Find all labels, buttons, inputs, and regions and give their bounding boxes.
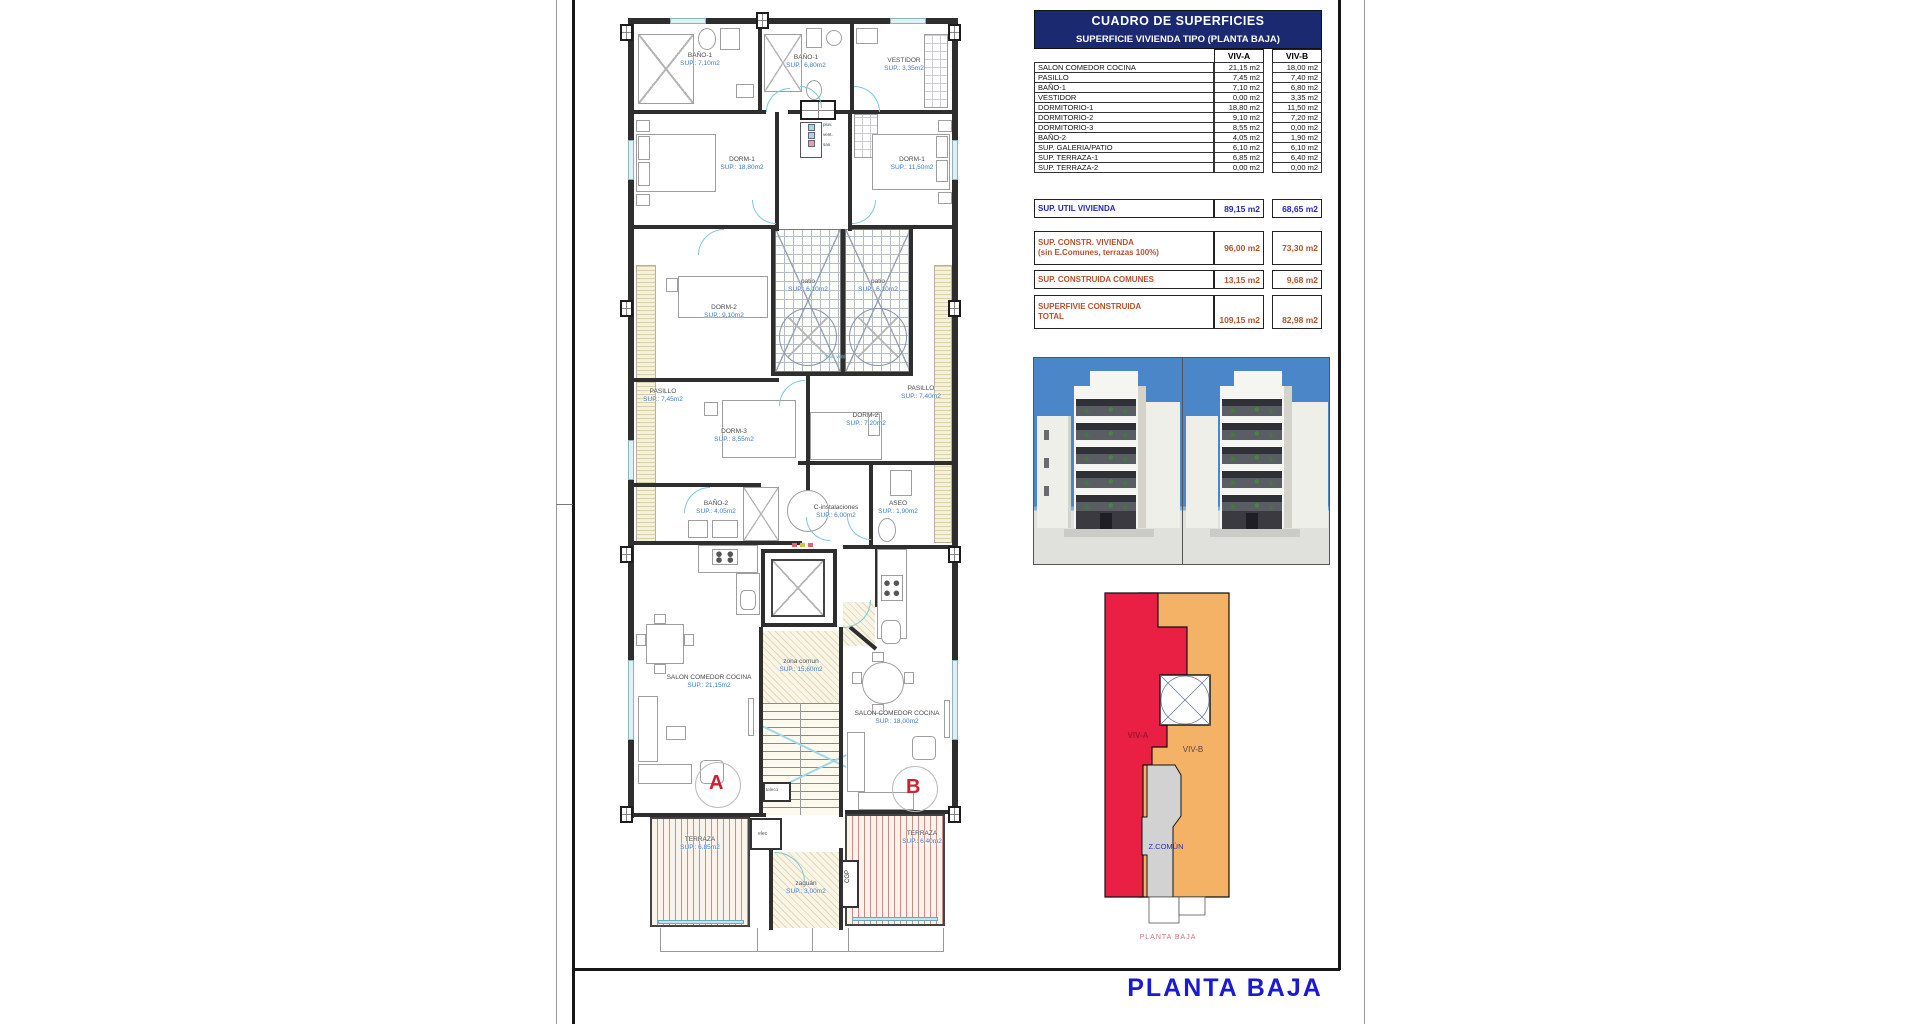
room-label-zona-comun: zona comunSUP.: 15,60m2 xyxy=(779,658,822,675)
entrance-door xyxy=(1246,513,1258,529)
nightstand xyxy=(666,278,678,292)
boundary-line xyxy=(660,928,661,952)
wall xyxy=(634,378,779,382)
wall xyxy=(841,229,845,374)
dining-table xyxy=(862,662,904,704)
riser-legend xyxy=(800,122,822,158)
key-label-viv-b: VIV-B xyxy=(1183,745,1203,754)
toilet xyxy=(878,518,896,542)
legend-text-vent: vent. xyxy=(823,132,833,137)
building-shade xyxy=(1138,386,1146,528)
window xyxy=(628,660,634,740)
table-row: SUP. TERRAZA-20,00 m20,00 m2 xyxy=(1034,162,1322,173)
stove xyxy=(881,575,903,601)
balcony-floor xyxy=(1076,446,1136,464)
chair xyxy=(872,652,884,662)
table-column-headers: VIV-A VIV-B xyxy=(1034,49,1322,63)
column-marker xyxy=(620,806,633,823)
room-label-pasillo-a: PASILLOSUP.: 7,45m2 xyxy=(643,388,683,405)
table-title: CUADRO DE SUPERFICIES xyxy=(1034,10,1322,32)
sheet-border-bottom-thick xyxy=(574,968,1340,971)
key-portal-box xyxy=(1149,897,1179,923)
sofa xyxy=(847,732,865,792)
coffee-table xyxy=(666,726,686,740)
column-header-viv-b: VIV-B xyxy=(1272,49,1322,63)
boundary-line xyxy=(812,928,813,952)
chair xyxy=(684,634,694,646)
window-slit xyxy=(1044,430,1049,440)
room-label-dorm2-b: DORM-2'SUP.: 7,20m2 xyxy=(846,412,886,429)
wall xyxy=(634,483,761,487)
elevator-car xyxy=(771,559,825,617)
summary-construida-total: SUPERFIVIE CONSTRUIDATOTAL 109,15 m2 82,… xyxy=(1034,295,1322,329)
sheet-border-left-thick xyxy=(572,0,575,1024)
room-label-dorm3-a: DORM-3SUP.: 8,55m2 xyxy=(714,428,754,445)
room-label-bano1-a: BAÑO-1SUP.: 7,10m2 xyxy=(680,52,720,69)
teleco-closet xyxy=(763,782,791,802)
balcony-floor xyxy=(1222,494,1282,512)
room-label-bano2-a: BAÑO-2SUP.: 4,05m2 xyxy=(696,500,736,517)
patio-circle-b xyxy=(849,308,907,366)
sheet-fold-line-left-thin xyxy=(556,0,557,1024)
window-slit xyxy=(1044,486,1049,496)
nightstand xyxy=(938,192,952,204)
room-label-dorm2-a: DORM-2SUP.: 9,10m2 xyxy=(704,304,744,321)
wall xyxy=(839,627,843,817)
terraza-b-sill xyxy=(852,917,938,921)
room-label-dorm1-b: DORM-1SUP.: 11,50m2 xyxy=(891,156,934,173)
room-label-patio-b: patioSUP.: 6,10m2 xyxy=(858,278,898,295)
column-marker xyxy=(948,546,961,563)
wall xyxy=(634,110,766,114)
entrance-door xyxy=(1100,513,1112,529)
building-shade xyxy=(1068,416,1071,528)
label-teleco: teleco xyxy=(766,787,778,792)
neighbor-building xyxy=(1186,416,1218,528)
balcony-floor xyxy=(1076,470,1136,488)
wall xyxy=(769,848,773,930)
column-header-viv-a: VIV-A xyxy=(1214,49,1264,63)
wall xyxy=(634,225,778,229)
nightstand xyxy=(636,120,650,132)
column-marker xyxy=(948,300,961,317)
sofa xyxy=(638,764,692,784)
bench xyxy=(856,28,878,44)
nightstand xyxy=(938,120,952,132)
sheet-edge-right-thin xyxy=(1364,0,1365,1024)
room-label-pasillo-b: PASILLOSUP.: 7,40m2 xyxy=(901,385,941,402)
wall xyxy=(798,461,956,465)
door-arc xyxy=(779,380,805,406)
pillow xyxy=(936,160,948,182)
legend-chip-pluv xyxy=(808,124,815,131)
window xyxy=(952,660,958,740)
neighbor-building xyxy=(1146,402,1180,528)
room-label-salon-a: SALON COMEDOR COCINASUP.: 21,15m2 xyxy=(667,674,752,691)
wall xyxy=(909,229,913,374)
sink xyxy=(688,520,708,538)
door-arc xyxy=(854,86,880,112)
chair xyxy=(654,614,666,624)
room-label-dorm1-a: DORM-1SUP.: 18,80m2 xyxy=(720,156,763,173)
balcony-floor xyxy=(1076,494,1136,512)
label-elec: elec xyxy=(758,831,767,837)
pillow xyxy=(936,136,948,158)
key-diagram-caption: PLANTA BAJA xyxy=(1103,934,1233,941)
key-label-viv-a: VIV-A xyxy=(1128,731,1149,740)
label-cgp: CGP xyxy=(845,870,851,883)
legend-chip-vent xyxy=(808,132,815,139)
room-label-aseo: ASEOSUP.: 1,90m2 xyxy=(878,500,918,517)
boundary-line xyxy=(848,928,849,952)
ground-shadow xyxy=(1064,529,1154,537)
door-arc xyxy=(752,200,776,224)
room-label-terraza-b: TERRAZASUP.: 6,40m2 xyxy=(902,830,942,847)
neighbor-building xyxy=(1292,402,1328,528)
chair xyxy=(654,664,666,674)
column-marker xyxy=(948,24,961,41)
column-marker xyxy=(620,300,633,317)
wall xyxy=(758,24,762,114)
wall xyxy=(771,372,913,376)
legend-chip-san xyxy=(808,140,815,147)
wall xyxy=(845,810,956,814)
window xyxy=(890,18,926,24)
chair xyxy=(852,672,862,684)
tv-unit xyxy=(748,698,754,736)
kitchen-sink xyxy=(881,620,901,644)
column-marker xyxy=(756,12,769,29)
window xyxy=(628,140,634,180)
legend-text-pluv: pluv. xyxy=(823,122,832,127)
balcony-floor xyxy=(1222,470,1282,488)
sink xyxy=(826,30,842,46)
key-label-z-comun: Z.COMÚN xyxy=(1149,842,1184,851)
window xyxy=(952,140,958,180)
washer xyxy=(720,28,740,50)
room-label-terraza-a: TERRAZASUP.: 6,85m2 xyxy=(680,836,720,853)
riser-mark-san xyxy=(808,543,813,547)
summary-construida-comunes: SUP. CONSTRUIDA COMUNES 13,15 m2 9,68 m2 xyxy=(1034,270,1322,289)
washer xyxy=(890,470,912,496)
balcony-floor xyxy=(1076,422,1136,440)
unit-key-diagram: VIV-A VIV-B Z.COMÚN xyxy=(1103,591,1233,931)
label-drains: pluv. vent. xyxy=(826,354,846,359)
kitchen-sink xyxy=(740,590,756,610)
riser-mark-vent xyxy=(800,543,805,547)
cgp-box xyxy=(841,860,859,908)
shower xyxy=(638,34,694,104)
chair xyxy=(904,672,914,684)
unit-letter-a: A xyxy=(709,772,723,795)
wall xyxy=(848,225,956,229)
washer xyxy=(806,28,822,48)
room-label-patio-a: patioSUP.: 6,10m2 xyxy=(788,278,828,295)
armchair xyxy=(912,736,936,760)
riser-mark-pluv xyxy=(792,543,797,547)
window-slit xyxy=(1044,458,1049,468)
cabinet xyxy=(712,520,738,538)
room-label-instalaciones: C-instalacionesSUP.: 6,00m2 xyxy=(814,504,858,521)
key-portal-box xyxy=(1179,897,1205,915)
surfaces-table: CUADRO DE SUPERFICIES SUPERFICIE VIVIEND… xyxy=(1034,10,1322,329)
summary-constr-vivienda: SUP. CONSTR. VIVIENDA(sin E.Comunes, ter… xyxy=(1034,231,1322,265)
legend-text-san: san. xyxy=(823,142,832,147)
boundary-line xyxy=(660,951,944,952)
render-separator xyxy=(1182,358,1183,564)
terraza-a xyxy=(650,817,750,927)
balcony-floor xyxy=(1222,398,1282,416)
summary-util-vivienda: SUP. UTIL VIVIENDA 89,15 m2 68,65 m2 xyxy=(1034,199,1322,218)
door-arc xyxy=(698,229,724,255)
ground-shadow xyxy=(1210,529,1300,537)
column-marker xyxy=(620,546,633,563)
balcony-floor xyxy=(1222,422,1282,440)
door-arc xyxy=(852,200,876,224)
building-shade xyxy=(1284,386,1292,528)
sink xyxy=(736,84,754,98)
wall xyxy=(634,813,766,817)
elevator-wall-top xyxy=(761,549,837,553)
neighbor-building xyxy=(1037,416,1071,528)
column-marker xyxy=(948,806,961,823)
boundary-line xyxy=(943,928,944,952)
tv-unit xyxy=(944,700,950,738)
elevator-wall-left xyxy=(761,549,765,627)
window xyxy=(670,18,706,24)
toilet xyxy=(698,28,716,50)
elevator-wall-right xyxy=(833,549,837,627)
room-label-zaguan: zaguánSUP.: 3,00m2 xyxy=(786,880,826,897)
terraza-a-sill xyxy=(658,920,744,924)
window xyxy=(628,440,634,480)
column-marker xyxy=(620,24,633,41)
building-render xyxy=(1033,357,1330,565)
table-subtitle: SUPERFICIE VIVIENDA TIPO (PLANTA BAJA) xyxy=(1034,32,1322,49)
pillow xyxy=(638,136,650,160)
elevator-wall-bottom xyxy=(761,623,837,627)
sofa xyxy=(638,696,658,762)
room-label-salon-b: SALON COMEDOR COCINASUP.: 18,00m2 xyxy=(855,710,940,727)
penthouse xyxy=(1090,371,1138,387)
balcony-floor xyxy=(1076,398,1136,416)
boundary-line xyxy=(757,928,758,952)
penthouse xyxy=(1234,371,1282,387)
chair xyxy=(636,634,646,646)
wardrobe xyxy=(924,34,948,108)
sheet-title: PLANTA BAJA xyxy=(1105,974,1345,1003)
shower xyxy=(743,487,779,541)
nightstand xyxy=(704,402,718,416)
stove xyxy=(712,549,738,565)
room-label-vestidor: VESTIDORSUP.: 3,35m2 xyxy=(884,57,924,74)
sheet-border-right-thick xyxy=(1338,0,1341,970)
wall xyxy=(771,229,775,374)
dining-table xyxy=(646,624,684,664)
unit-letter-b: B xyxy=(906,776,920,799)
balcony-floor xyxy=(1222,446,1282,464)
pillow xyxy=(638,162,650,186)
sheet-fold-tick xyxy=(556,504,573,505)
nightstand xyxy=(636,194,650,206)
stair-rail xyxy=(800,703,801,815)
room-label-bano1-b: BAÑO-1SUP.: 6,80m2 xyxy=(786,54,826,71)
